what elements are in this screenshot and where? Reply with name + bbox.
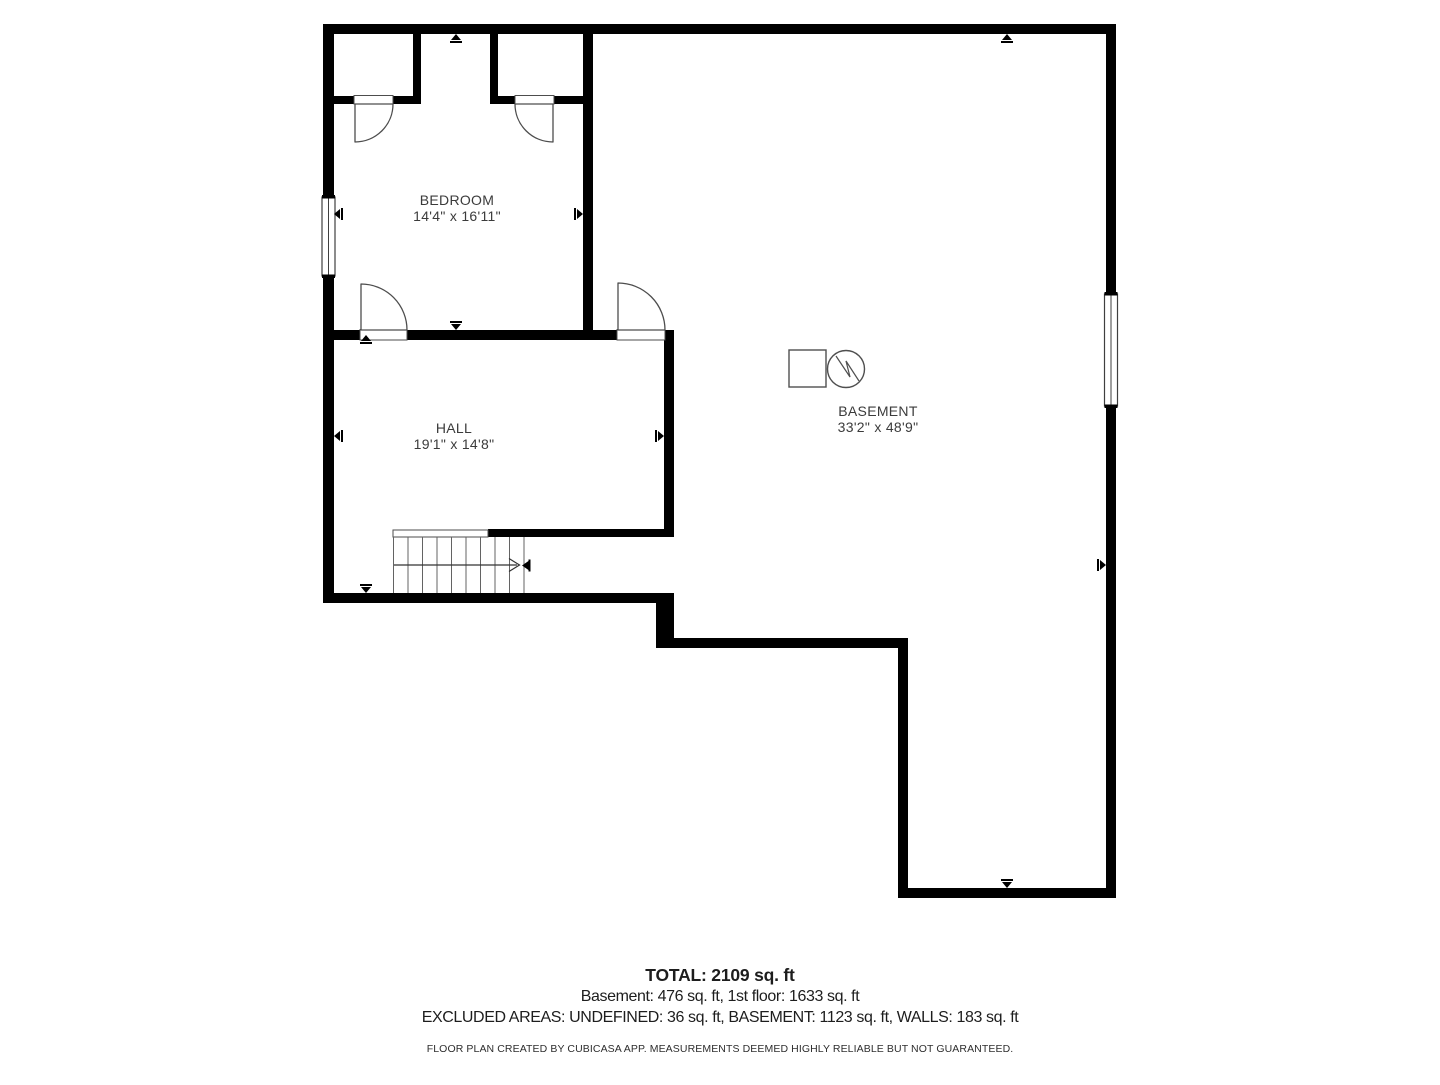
- measure-ticks: [334, 34, 1106, 888]
- bedroom-name: BEDROOM: [413, 192, 501, 208]
- floor-plan-canvas: [0, 0, 1440, 1085]
- disclaimer: FLOOR PLAN CREATED BY CUBICASA APP. MEAS…: [0, 1043, 1440, 1055]
- summary-floors: Basement: 476 sq. ft, 1st floor: 1633 sq…: [0, 986, 1440, 1007]
- basement-label: BASEMENT 33'2" x 48'9": [838, 403, 919, 435]
- wall-bedroom-right: [583, 24, 593, 340]
- basement-door-threshold: [617, 330, 665, 341]
- stairs-direction-arrow: [394, 559, 520, 572]
- hall-name: HALL: [414, 420, 495, 436]
- wall-lower-left: [898, 638, 908, 898]
- measure-tick: [450, 34, 462, 43]
- wall-hall-bottom: [323, 593, 674, 603]
- wall-bottom-right: [898, 888, 1116, 898]
- bedroom-window-cap-top: [322, 195, 335, 199]
- wall-step-horizontal: [656, 638, 908, 648]
- hall-dimensions: 19'1" x 14'8": [414, 436, 495, 452]
- wall-closet2-left: [490, 24, 498, 104]
- hall-label: HALL 19'1" x 14'8": [414, 420, 495, 452]
- closet2-door-swing: [515, 104, 553, 142]
- basement-door-swing: [618, 283, 665, 330]
- measure-tick: [450, 321, 462, 330]
- closet1-door-swing: [355, 104, 393, 142]
- measure-tick: [334, 430, 343, 442]
- measure-tick: [360, 584, 372, 593]
- stairs-landing-edge: [393, 530, 488, 537]
- bedroom-label: BEDROOM 14'4" x 16'11": [413, 192, 501, 224]
- basement-window-cap-bottom: [1105, 405, 1118, 409]
- area-summary: TOTAL: 2109 sq. ft Basement: 476 sq. ft,…: [0, 965, 1440, 1028]
- closet2-door-threshold: [515, 96, 554, 105]
- walls: [323, 24, 1116, 898]
- wall-left: [323, 24, 334, 603]
- basement-dimensions: 33'2" x 48'9": [838, 419, 919, 435]
- wall-right: [1106, 24, 1116, 898]
- wall-closet1-right: [413, 24, 421, 104]
- appliance-square-icon: [789, 350, 826, 387]
- stairs-arrow-end-tick: [522, 560, 531, 572]
- wall-top: [324, 24, 1116, 34]
- bedroom-window-cap-bottom: [322, 275, 335, 279]
- wall-hall-right: [664, 330, 674, 537]
- measure-tick: [1097, 559, 1106, 571]
- basement-window-cap-top: [1105, 292, 1118, 296]
- stairs: [393, 530, 531, 593]
- measure-tick: [1001, 879, 1013, 888]
- water-heater-icon: [828, 351, 865, 388]
- basement-window: [1105, 292, 1118, 408]
- bedroom-door-swing: [361, 284, 407, 330]
- measure-tick: [655, 430, 664, 442]
- measure-tick: [1001, 34, 1013, 43]
- fixtures: [789, 350, 865, 388]
- closet1-door-threshold: [354, 96, 393, 105]
- floor-plan-svg: [0, 0, 1440, 1080]
- summary-excluded: EXCLUDED AREAS: UNDEFINED: 36 sq. ft, BA…: [0, 1007, 1440, 1028]
- basement-name: BASEMENT: [838, 403, 919, 419]
- doors: [355, 104, 665, 330]
- bedroom-window: [322, 195, 335, 278]
- measure-tick: [574, 208, 583, 220]
- wall-stair-header: [488, 529, 674, 537]
- summary-total: TOTAL: 2109 sq. ft: [0, 965, 1440, 986]
- bedroom-dimensions: 14'4" x 16'11": [413, 208, 501, 224]
